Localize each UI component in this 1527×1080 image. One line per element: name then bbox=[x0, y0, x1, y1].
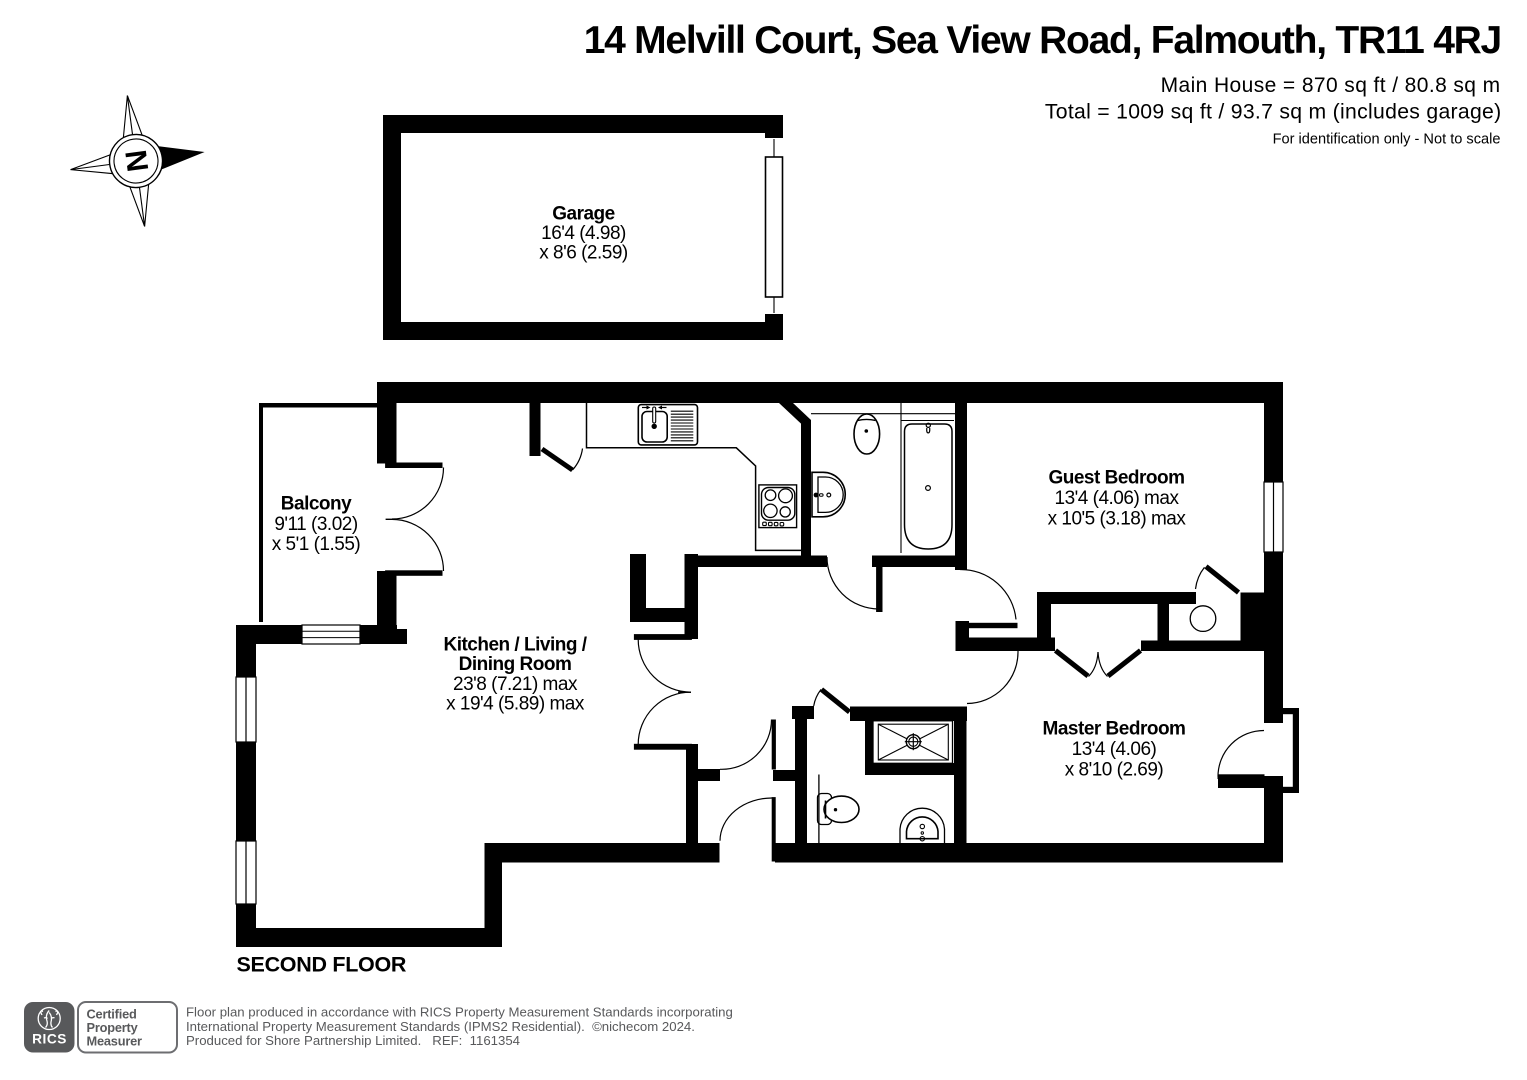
svg-text:SECOND FLOOR: SECOND FLOOR bbox=[237, 953, 407, 977]
svg-text:16'4 (4.98): 16'4 (4.98) bbox=[541, 223, 626, 244]
svg-text:Balcony: Balcony bbox=[281, 494, 352, 515]
svg-text:Garage: Garage bbox=[552, 203, 614, 224]
svg-text:Dining Room: Dining Room bbox=[459, 654, 572, 675]
svg-text:International Property Measure: International Property Measurement Stand… bbox=[186, 1019, 695, 1034]
svg-text:13'4 (4.06): 13'4 (4.06) bbox=[1072, 739, 1157, 760]
svg-text:23'8 (7.21) max: 23'8 (7.21) max bbox=[453, 674, 578, 695]
svg-text:x 19'4 (5.89) max: x 19'4 (5.89) max bbox=[446, 694, 585, 715]
svg-text:RICS: RICS bbox=[32, 1032, 67, 1047]
svg-text:14 Melvill Court, Sea View Roa: 14 Melvill Court, Sea View Road, Falmout… bbox=[584, 19, 1501, 62]
svg-text:Measurer: Measurer bbox=[87, 1034, 143, 1049]
svg-text:13'4 (4.06) max: 13'4 (4.06) max bbox=[1055, 488, 1180, 509]
svg-text:N: N bbox=[118, 148, 154, 174]
svg-text:x 8'6 (2.59): x 8'6 (2.59) bbox=[539, 243, 628, 264]
svg-text:Main House = 870 sq ft / 80.8: Main House = 870 sq ft / 80.8 sq m bbox=[1161, 74, 1501, 97]
svg-text:Master Bedroom: Master Bedroom bbox=[1043, 719, 1186, 740]
svg-text:Guest Bedroom: Guest Bedroom bbox=[1048, 468, 1184, 489]
svg-text:x 8'10 (2.69): x 8'10 (2.69) bbox=[1065, 760, 1164, 781]
svg-text:Kitchen / Living /: Kitchen / Living / bbox=[443, 635, 587, 656]
svg-text:Floor plan produced in accorda: Floor plan produced in accordance with R… bbox=[186, 1005, 733, 1020]
svg-text:Total = 1009 sq ft / 93.7 sq m: Total = 1009 sq ft / 93.7 sq m (includes… bbox=[1045, 101, 1502, 124]
svg-text:Produced for Shore Partnership: Produced for Shore Partnership Limited. … bbox=[186, 1033, 520, 1048]
svg-text:x 5'1 (1.55): x 5'1 (1.55) bbox=[272, 534, 361, 555]
svg-text:x 10'5 (3.18) max: x 10'5 (3.18) max bbox=[1048, 509, 1187, 530]
svg-text:9'11 (3.02): 9'11 (3.02) bbox=[274, 514, 358, 535]
svg-text:For identification only - Not: For identification only - Not to scale bbox=[1273, 132, 1501, 148]
